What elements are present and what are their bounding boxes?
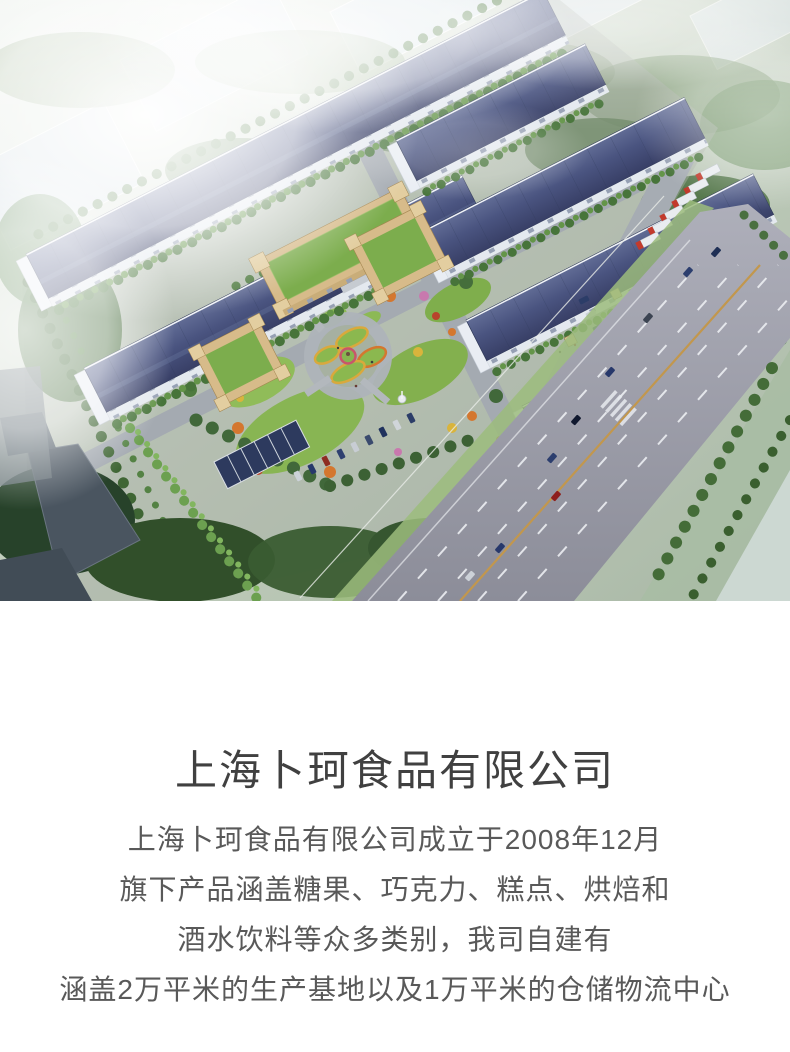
company-intro-line: 酒水饮料等众多类别，我司自建有: [0, 915, 790, 965]
factory-aerial-rendering: [0, 0, 790, 601]
company-intro-line: 旗下产品涵盖糖果、巧克力、糕点、烘焙和: [0, 865, 790, 915]
company-text-section: 上海卜珂食品有限公司 上海卜珂食品有限公司成立于2008年12月 旗下产品涵盖糖…: [0, 747, 790, 1015]
company-intro-line: 上海卜珂食品有限公司成立于2008年12月: [0, 815, 790, 865]
company-intro-line: 涵盖2万平米的生产基地以及1万平米的仓储物流中心: [0, 965, 790, 1015]
factory-aerial-image: [0, 0, 790, 601]
garden-statue: [346, 352, 350, 356]
company-intro-page: 上海卜珂食品有限公司 上海卜珂食品有限公司成立于2008年12月 旗下产品涵盖糖…: [0, 0, 790, 1052]
company-intro: 上海卜珂食品有限公司成立于2008年12月 旗下产品涵盖糖果、巧克力、糕点、烘焙…: [0, 815, 790, 1015]
company-name-heading: 上海卜珂食品有限公司: [0, 747, 790, 795]
